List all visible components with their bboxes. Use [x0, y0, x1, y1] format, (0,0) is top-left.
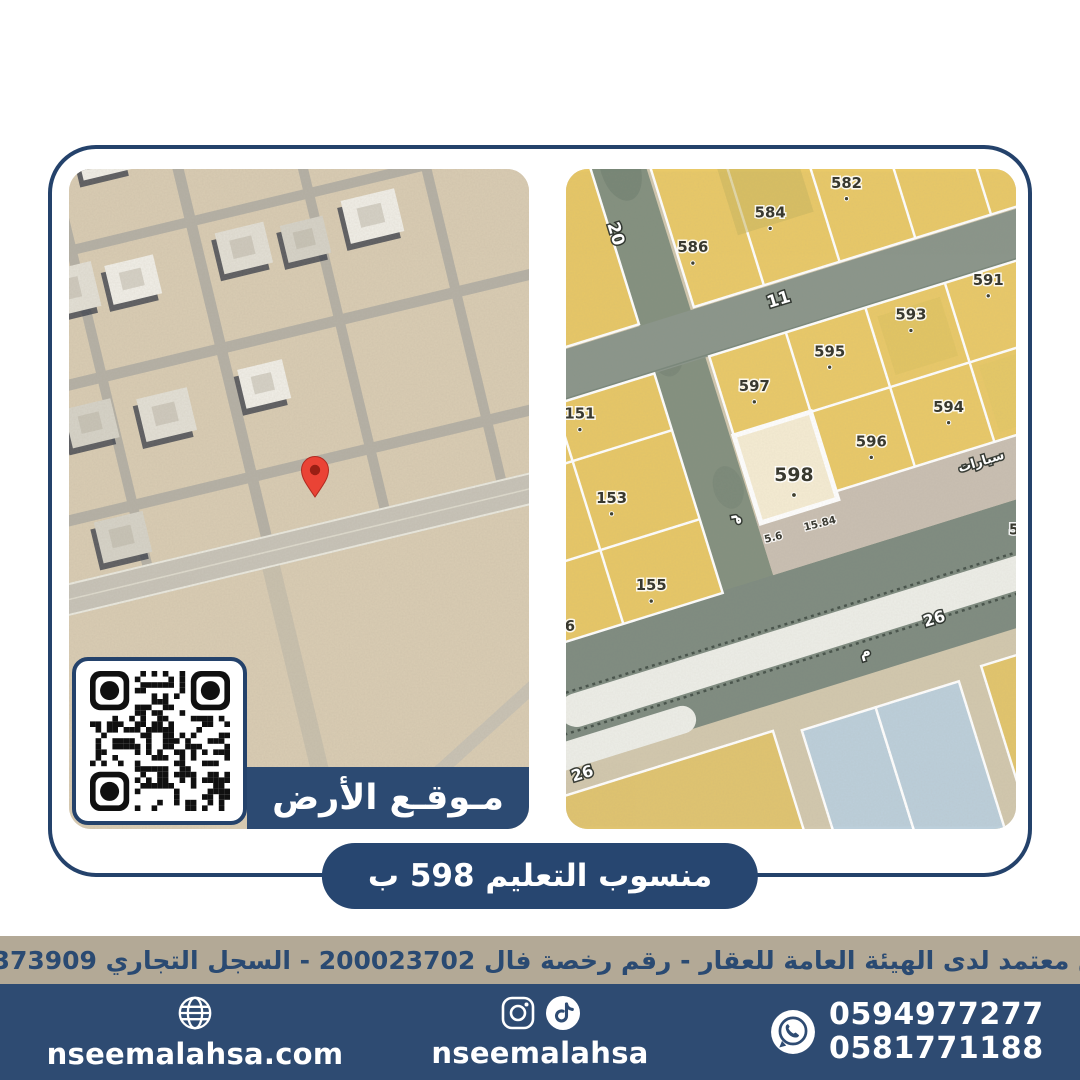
elevation-ribbon-label: منسوب التعليم 598 ب — [368, 858, 712, 894]
parcel-label: 594 — [933, 398, 964, 416]
phone-number-1: 0594977277 — [829, 998, 1044, 1032]
social-handle-label: nseemalahsa — [431, 1036, 648, 1070]
parcel-label: 593 — [895, 306, 926, 324]
qr-code-icon — [90, 671, 230, 811]
parcel-label-partial: 6 — [566, 617, 575, 635]
parcel-label-598: 598 — [774, 465, 813, 486]
main-card: مـوقـع الأرض — [48, 145, 1032, 877]
phone-section: 0594977277 0581771188 — [770, 988, 1044, 1076]
website-label: nseemalahsa.com — [47, 1037, 344, 1071]
location-banner: مـوقـع الأرض — [247, 767, 529, 829]
parcel-label: 582 — [831, 174, 862, 192]
parcel-label: 153 — [596, 489, 627, 507]
elevation-ribbon: منسوب التعليم 598 ب — [322, 843, 758, 909]
parcel-label: 586 — [677, 238, 708, 256]
parcel-map: 582 584 586 591 593 595 597 594 596 598 … — [566, 169, 1016, 829]
license-text: مسوق معتمد لدى الهيئة العامة للعقار - رق… — [0, 946, 1080, 975]
parcel-label: 597 — [739, 377, 770, 395]
phone-number-2: 0581771188 — [829, 1032, 1044, 1066]
social-section: nseemalahsa — [405, 988, 675, 1076]
real-estate-flyer: مـوقـع الأرض — [0, 0, 1080, 1080]
footer: nseemalahsa.com — [0, 984, 1080, 1080]
location-banner-label: مـوقـع الأرض — [272, 778, 504, 818]
website-section: nseemalahsa.com — [60, 988, 330, 1076]
satellite-map: مـوقـع الأرض — [69, 169, 529, 829]
license-bar: مسوق معتمد لدى الهيئة العامة للعقار - رق… — [0, 936, 1080, 984]
parcel-map-canvas: 582 584 586 591 593 595 597 594 596 598 … — [566, 169, 1016, 829]
globe-icon — [176, 994, 214, 1032]
parcel-label: 591 — [973, 271, 1004, 289]
parcel-label: 151 — [566, 405, 595, 423]
whatsapp-icon — [770, 1009, 816, 1055]
parcel-label: 596 — [856, 432, 887, 450]
parcel-label: 584 — [755, 204, 786, 222]
parcel-label: 595 — [814, 342, 845, 360]
social-icons — [500, 995, 581, 1031]
tiktok-icon — [545, 995, 581, 1031]
phone-numbers: 0594977277 0581771188 — [829, 998, 1044, 1065]
qr-code — [72, 657, 247, 825]
parcel-label: 155 — [636, 576, 667, 594]
instagram-icon — [500, 995, 536, 1031]
parcel-label-partial: 5 — [1009, 521, 1016, 539]
